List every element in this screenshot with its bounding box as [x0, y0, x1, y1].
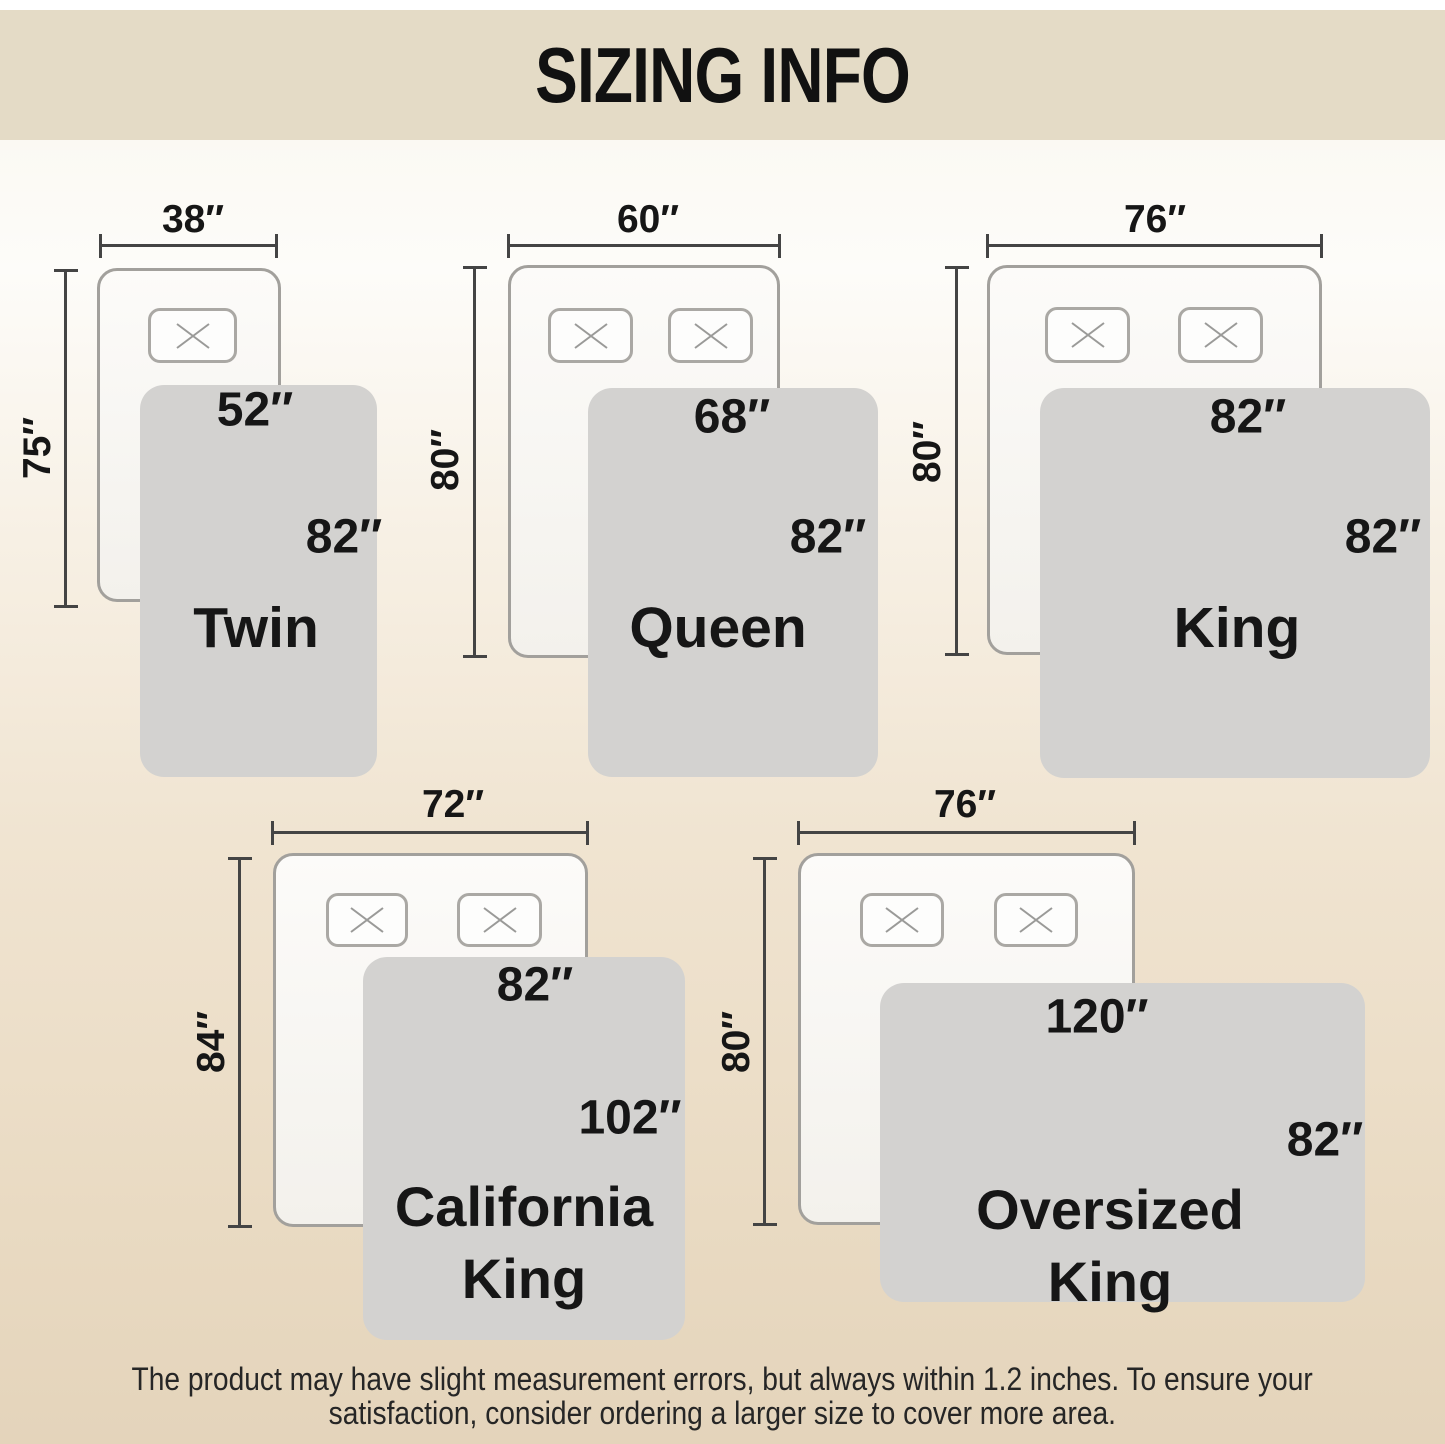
oversized-king-bed-length-dimension	[763, 858, 766, 1225]
queen-bed-width-dimension	[508, 244, 780, 247]
pillow-cross-icon	[688, 320, 734, 352]
twin-blanket	[140, 385, 377, 777]
california-king-bed-length-dimension	[238, 858, 241, 1227]
queen-bed-width-label: 60″	[617, 198, 679, 242]
pillow-cross-icon	[1198, 319, 1244, 351]
twin-size-name-label: Twin	[91, 592, 421, 665]
footer-note: The product may have slight measurement …	[0, 1362, 1445, 1430]
oversized-king-size-name-label: Oversized King	[945, 1174, 1275, 1317]
twin-pillow	[148, 308, 237, 363]
queen-bed-length-label: 80″	[424, 429, 468, 491]
king-blanket	[1040, 388, 1430, 778]
page-title: SIZING INFO	[535, 30, 910, 121]
california-king-size-name-label: California King	[359, 1171, 689, 1314]
king-blanket-length-label: 82″	[1345, 510, 1421, 565]
header-band: SIZING INFO	[0, 10, 1445, 140]
twin-blanket-width-label: 52″	[217, 383, 293, 438]
twin-blanket-length-label: 82″	[306, 510, 382, 565]
pillow-cross-icon	[879, 904, 925, 936]
king-pillow-right	[1178, 307, 1263, 363]
california-king-blanket-length-label: 102″	[578, 1091, 681, 1146]
oversized-king-bed-length-label: 80″	[715, 1011, 759, 1073]
queen-size-name-label: Queen	[553, 592, 883, 665]
pillow-cross-icon	[568, 320, 614, 352]
footer-note-line1: The product may have slight measurement …	[132, 1362, 1313, 1396]
oversized-king-blanket-width-label: 120″	[1045, 990, 1148, 1045]
pillow-cross-icon	[1065, 319, 1111, 351]
california-king-pillow-left	[326, 893, 408, 947]
king-pillow-left	[1045, 307, 1130, 363]
california-king-bed-width-label: 72″	[422, 783, 484, 827]
queen-bed-length-dimension	[473, 267, 476, 657]
california-king-bed-length-label: 84″	[190, 1011, 234, 1073]
twin-bed-length-dimension	[64, 270, 67, 607]
queen-pillow-left	[548, 308, 633, 363]
pillow-cross-icon	[477, 904, 523, 936]
footer-note-line2: satisfaction, consider ordering a larger…	[329, 1396, 1116, 1430]
king-bed-length-label: 80″	[906, 421, 950, 483]
california-king-pillow-right	[457, 893, 542, 947]
king-bed-width-label: 76″	[1124, 198, 1186, 242]
twin-bed-width-dimension	[100, 244, 277, 247]
oversized-king-bed-width-label: 76″	[934, 783, 996, 827]
queen-blanket-width-label: 68″	[694, 390, 770, 445]
sizing-info-page: SIZING INFO 38″ 75″ 52″ 82″ Twin 60″ 80″…	[0, 0, 1445, 1444]
oversized-king-pillow-right	[994, 893, 1078, 947]
pillow-cross-icon	[1013, 904, 1059, 936]
pillow-cross-icon	[170, 320, 216, 352]
king-bed-width-dimension	[987, 244, 1322, 247]
pillow-cross-icon	[344, 904, 390, 936]
oversized-king-blanket-length-label: 82″	[1287, 1113, 1363, 1168]
twin-bed-length-label: 75″	[16, 417, 60, 479]
california-king-blanket-width-label: 82″	[497, 958, 573, 1013]
king-size-name-label: King	[1072, 592, 1402, 665]
king-bed-length-dimension	[955, 267, 958, 655]
twin-bed-width-label: 38″	[162, 198, 224, 242]
queen-pillow-right	[668, 308, 753, 363]
california-king-bed-width-dimension	[272, 831, 588, 834]
king-blanket-width-label: 82″	[1210, 390, 1286, 445]
oversized-king-bed-width-dimension	[798, 831, 1135, 834]
queen-blanket	[588, 388, 878, 777]
queen-blanket-length-label: 82″	[790, 510, 866, 565]
oversized-king-pillow-left	[860, 893, 944, 947]
